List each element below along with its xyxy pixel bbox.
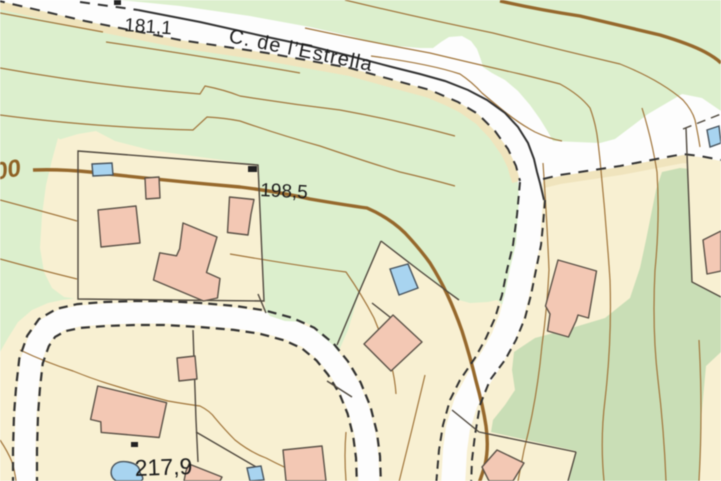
svg-text:181,1: 181,1 <box>124 15 173 39</box>
svg-text:217,9: 217,9 <box>134 453 192 481</box>
svg-text:198,5: 198,5 <box>260 180 309 203</box>
